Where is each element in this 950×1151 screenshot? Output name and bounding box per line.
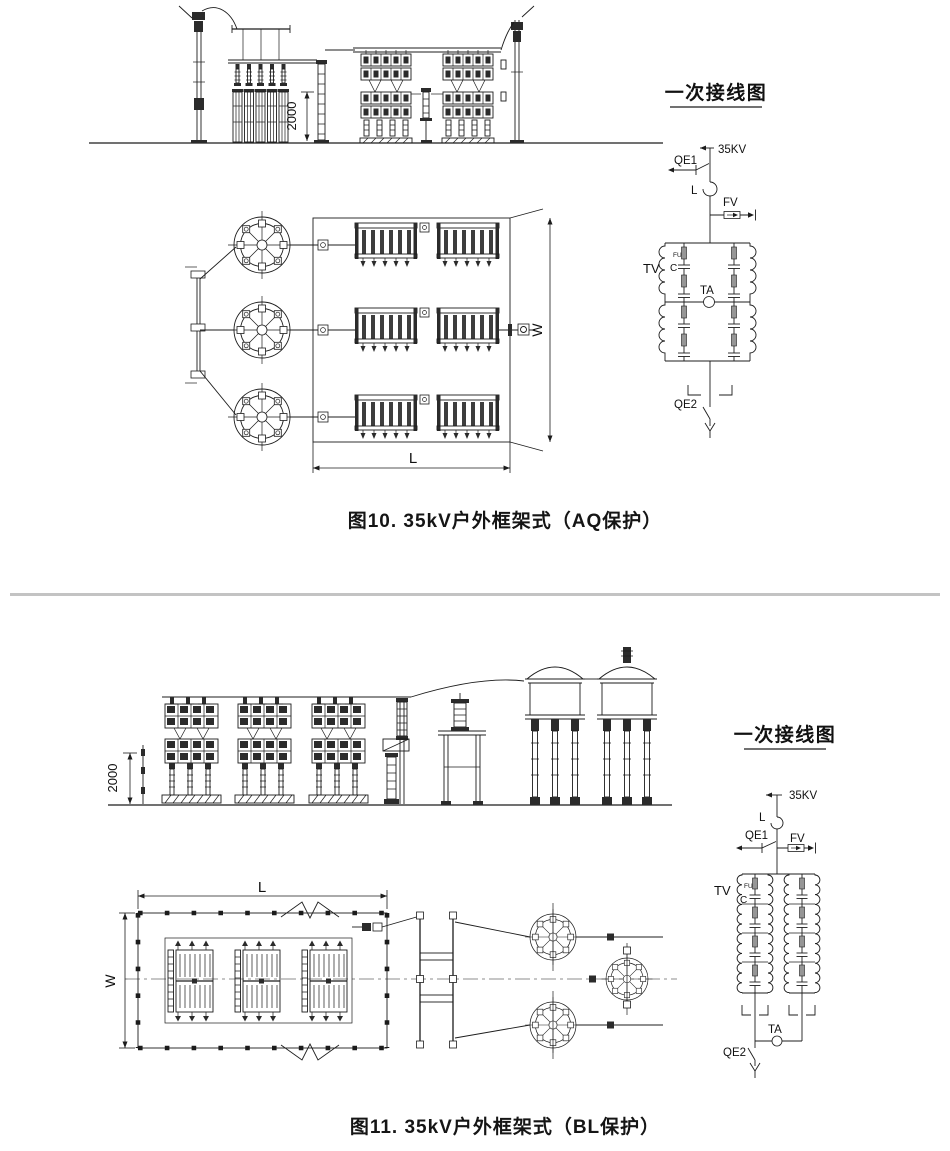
dim-label-w: W xyxy=(102,974,118,988)
incoming-bus-structure xyxy=(228,25,317,142)
reactor-bushing xyxy=(621,647,633,663)
reactor-plan-a xyxy=(228,211,296,279)
label-c: C xyxy=(670,263,677,274)
figure10-caption: 图10. 35kV户外框架式（AQ保护） xyxy=(0,506,950,533)
reactor-plan-c xyxy=(228,383,296,451)
dim-label-l: L xyxy=(409,450,417,467)
reactor-symbol xyxy=(771,817,783,829)
label-qe1: QE1 xyxy=(745,830,768,842)
reactor-plan-b xyxy=(228,296,296,364)
bottom-connections xyxy=(742,993,815,1048)
capacitor-stack-3 xyxy=(309,697,368,803)
break-mark-bottom xyxy=(281,1044,339,1060)
capacitor-bank-columns xyxy=(737,874,820,993)
post-insulator xyxy=(314,60,329,143)
figure11-plan-drawing: L W xyxy=(105,865,685,1093)
dim-label-2000: 2000 xyxy=(105,764,120,793)
jumper-bottom xyxy=(200,371,236,415)
capacitor-bank-box xyxy=(659,243,756,361)
capacitor-stack-1 xyxy=(162,697,221,803)
support-frame xyxy=(417,912,457,1048)
figure10-schematic: 一次接线图 35KV QE1 L FV xyxy=(630,75,890,460)
figure10-elevation-drawing: 2000 xyxy=(85,2,670,152)
label-qe2: QE2 xyxy=(723,1047,746,1059)
length-dimension: L xyxy=(313,442,510,473)
elevated-reactor-1 xyxy=(525,667,585,805)
schematic-title: 一次接线图 xyxy=(734,723,837,746)
dim-label-l: L xyxy=(258,879,266,896)
bus-mast xyxy=(383,698,409,804)
section-divider xyxy=(10,593,940,596)
label-35kv: 35KV xyxy=(789,790,817,802)
schematic-title: 一次接线图 xyxy=(665,81,768,104)
rack-plan-1 xyxy=(168,941,213,1022)
label-tv: TV xyxy=(643,261,660,276)
label-fv: FV xyxy=(790,833,805,845)
elevated-reactor-2 xyxy=(597,667,657,805)
disconnector-qe1 xyxy=(736,842,776,854)
label-ta: TA xyxy=(768,1024,782,1036)
label-tv: TV xyxy=(714,883,731,898)
fuse-connector xyxy=(352,916,420,931)
label-fu: FU xyxy=(673,252,682,259)
label-35kv: 35KV xyxy=(718,144,746,156)
label-fu: FU xyxy=(744,883,753,890)
label-qe1: QE1 xyxy=(674,155,697,167)
break-mark-top xyxy=(281,902,339,918)
dim-label-2000: 2000 xyxy=(284,102,299,131)
incoming-line xyxy=(766,793,782,818)
catalog-page: 2000 xyxy=(0,0,950,1151)
capacitor-stack-2 xyxy=(235,697,294,803)
height-dimension: 2000 xyxy=(105,753,137,804)
dim-label-w: W xyxy=(529,323,545,337)
arrester-fv xyxy=(710,210,756,221)
rack-plan-3 xyxy=(302,941,347,1022)
figure11-schematic: 一次接线图 35KV L QE1 FV xyxy=(690,715,915,1100)
incoming-line xyxy=(700,146,714,183)
grounding-qe2 xyxy=(748,1048,760,1078)
label-ta: TA xyxy=(700,285,714,297)
left-disconnect-pole xyxy=(179,6,237,143)
feeder-bus xyxy=(185,267,205,383)
label-l: L xyxy=(759,812,766,824)
arrester-stand xyxy=(438,693,486,805)
length-dimension: L xyxy=(138,879,387,909)
width-dimension: W xyxy=(102,913,135,1048)
figure10-plan-drawing: W L xyxy=(115,205,585,490)
label-l: L xyxy=(691,185,698,197)
right-disconnect-pole xyxy=(501,6,534,143)
label-c: C xyxy=(740,895,747,906)
figure11-caption: 图11. 35kV户外框架式（BL保护） xyxy=(0,1112,950,1139)
height-dimension: 2000 xyxy=(284,92,314,141)
marker-pole xyxy=(141,745,145,804)
overhead-conductor xyxy=(411,680,524,697)
figure11-elevation-drawing: 2000 xyxy=(100,645,680,815)
capacitor-frame xyxy=(325,48,506,143)
jumper-top xyxy=(200,247,236,279)
rack-plan-2 xyxy=(235,941,280,1022)
capacitor-racks-plan xyxy=(355,223,499,439)
label-fv: FV xyxy=(723,197,738,209)
label-qe2: QE2 xyxy=(674,399,697,411)
reactor-symbol xyxy=(703,182,717,196)
